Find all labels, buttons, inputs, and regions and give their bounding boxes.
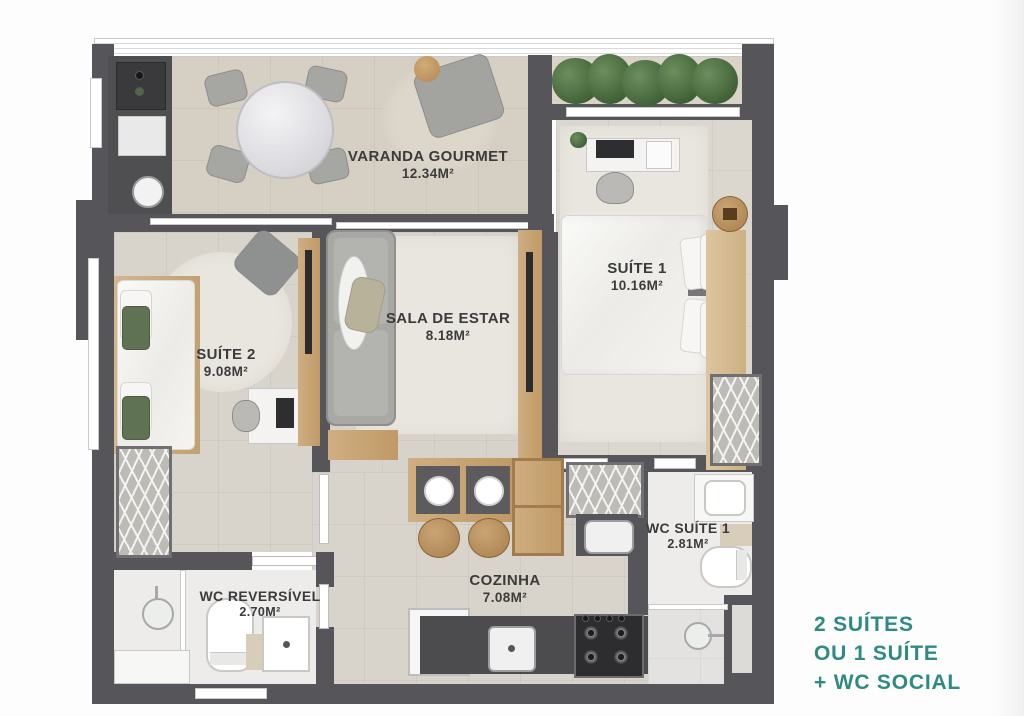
kitchen-cabinet — [566, 462, 644, 518]
faucet-dot — [508, 645, 515, 652]
pouf-detail — [723, 208, 737, 220]
room-area: 8.18M² — [386, 328, 510, 343]
room-name: WC REVERSÍVEL — [199, 588, 320, 604]
room-area: 2.70M² — [199, 605, 320, 619]
room-area: 10.16M² — [607, 278, 666, 293]
room-area: 12.34M² — [348, 166, 508, 181]
room-area: 9.08M² — [196, 364, 255, 379]
suite2-green-pillow — [122, 306, 150, 350]
suite1-desk-chair — [596, 172, 634, 204]
wc1-sink — [704, 480, 746, 516]
door-wc-reversivel — [252, 556, 320, 566]
wall-wc-reversivel-right-b — [316, 627, 334, 689]
door-suite2 — [319, 474, 329, 544]
floorplan-canvas: VARANDA GOURMET 12.34M² SUÍTE 1 10.16M² … — [0, 0, 1024, 716]
suite2-laptop — [276, 398, 294, 428]
suite2-desk-chair — [232, 400, 260, 432]
wc1-toilet — [700, 546, 752, 588]
room-name: VARANDA GOURMET — [348, 148, 508, 165]
stove-knob — [594, 615, 601, 622]
wall-sala-suite1 — [540, 232, 558, 472]
wcrev-toilet-tank — [210, 652, 246, 665]
grill-knob — [135, 87, 144, 96]
grill — [116, 62, 166, 110]
sliding-door-varanda-1 — [150, 218, 332, 225]
window-left-varanda — [90, 78, 102, 148]
burner — [584, 626, 598, 640]
room-name: WC SUÍTE 1 — [646, 520, 730, 536]
suite2-green-pillow — [122, 396, 150, 440]
wcrev-shower-glass — [180, 570, 186, 654]
room-area: 7.08M² — [469, 590, 540, 605]
stove-knob — [606, 615, 613, 622]
wc1-shower-niche — [732, 605, 752, 673]
stove-knob — [618, 615, 625, 622]
outer-wall-right-notch — [772, 205, 788, 280]
door-bottom-wc-reversivel — [195, 688, 267, 699]
burner — [584, 650, 598, 664]
wcrev-vanity — [114, 650, 190, 684]
room-name: COZINHA — [469, 572, 540, 589]
room-name: SUÍTE 2 — [196, 346, 255, 363]
window-left-suite2 — [88, 258, 99, 450]
suite2-wardrobe — [116, 446, 172, 558]
room-label-suite2: SUÍTE 2 9.08M² — [196, 346, 255, 379]
room-label-wc-reversivel: WC REVERSÍVEL 2.70M² — [199, 588, 320, 619]
wc1-shower-head — [684, 622, 712, 650]
room-name: SALA DE ESTAR — [386, 310, 510, 327]
sliding-door-varanda-2 — [336, 222, 538, 229]
room-area: 2.81M² — [646, 537, 730, 551]
burner — [614, 626, 628, 640]
room-label-wc-suite1: WC SUÍTE 1 2.81M² — [646, 520, 730, 551]
faucet-dot — [283, 641, 290, 648]
varanda-cabinet — [118, 116, 166, 156]
kitchen-sink — [584, 520, 634, 554]
tagline-line2: OU 1 SUÍTE — [814, 639, 961, 668]
kitchen-shelf-divider — [512, 505, 564, 508]
wall-varanda-suite1 — [528, 55, 552, 232]
wc1-toilet-tank — [736, 550, 747, 580]
suite1-plant — [570, 132, 587, 148]
burner — [614, 650, 628, 664]
room-label-cozinha: COZINHA 7.08M² — [469, 572, 540, 605]
suite1-pouf — [712, 196, 748, 232]
room-label-varanda: VARANDA GOURMET 12.34M² — [348, 148, 508, 181]
dining-table — [236, 81, 334, 179]
bar-stool — [468, 518, 510, 558]
wcrev-sink — [262, 616, 310, 672]
lounge-side-table — [414, 56, 440, 82]
suite1-paper — [646, 141, 672, 169]
stove-knob — [582, 615, 589, 622]
apartment-floorplan: VARANDA GOURMET 12.34M² SUÍTE 1 10.16M² … — [0, 0, 1024, 716]
suite1-wardrobe — [710, 374, 762, 466]
tagline-line1: 2 SUÍTES — [814, 610, 961, 639]
suite1-laptop — [596, 140, 634, 158]
plant — [692, 58, 738, 104]
sala-coffee-bench — [328, 430, 398, 460]
wc1-shower-glass — [648, 604, 728, 610]
room-label-sala: SALA DE ESTAR 8.18M² — [386, 310, 510, 343]
wcrev-shower-head — [142, 598, 174, 630]
tagline-line3: + WC SOCIAL — [814, 668, 961, 697]
room-label-suite1: SUÍTE 1 10.16M² — [607, 260, 666, 293]
right-edge-shade — [994, 0, 1024, 716]
counter-sink — [488, 626, 536, 672]
plate — [474, 476, 504, 506]
gas-stove — [574, 614, 644, 678]
tagline: 2 SUÍTES OU 1 SUÍTE + WC SOCIAL — [814, 610, 961, 697]
shower-arm — [155, 586, 158, 600]
sala-tv — [526, 252, 533, 392]
bar-stool — [418, 518, 460, 558]
plate — [424, 476, 454, 506]
shower-arm — [708, 634, 724, 637]
varanda-sink — [132, 176, 164, 208]
window-suite1-top — [566, 107, 740, 117]
outer-wall-top-right — [742, 44, 772, 112]
room-name: SUÍTE 1 — [607, 260, 666, 277]
wall-wc-reversivel-right-a — [316, 552, 334, 587]
suite2-tv — [305, 250, 312, 354]
grill-knob — [135, 71, 144, 80]
door-wc-suite1 — [654, 458, 696, 469]
